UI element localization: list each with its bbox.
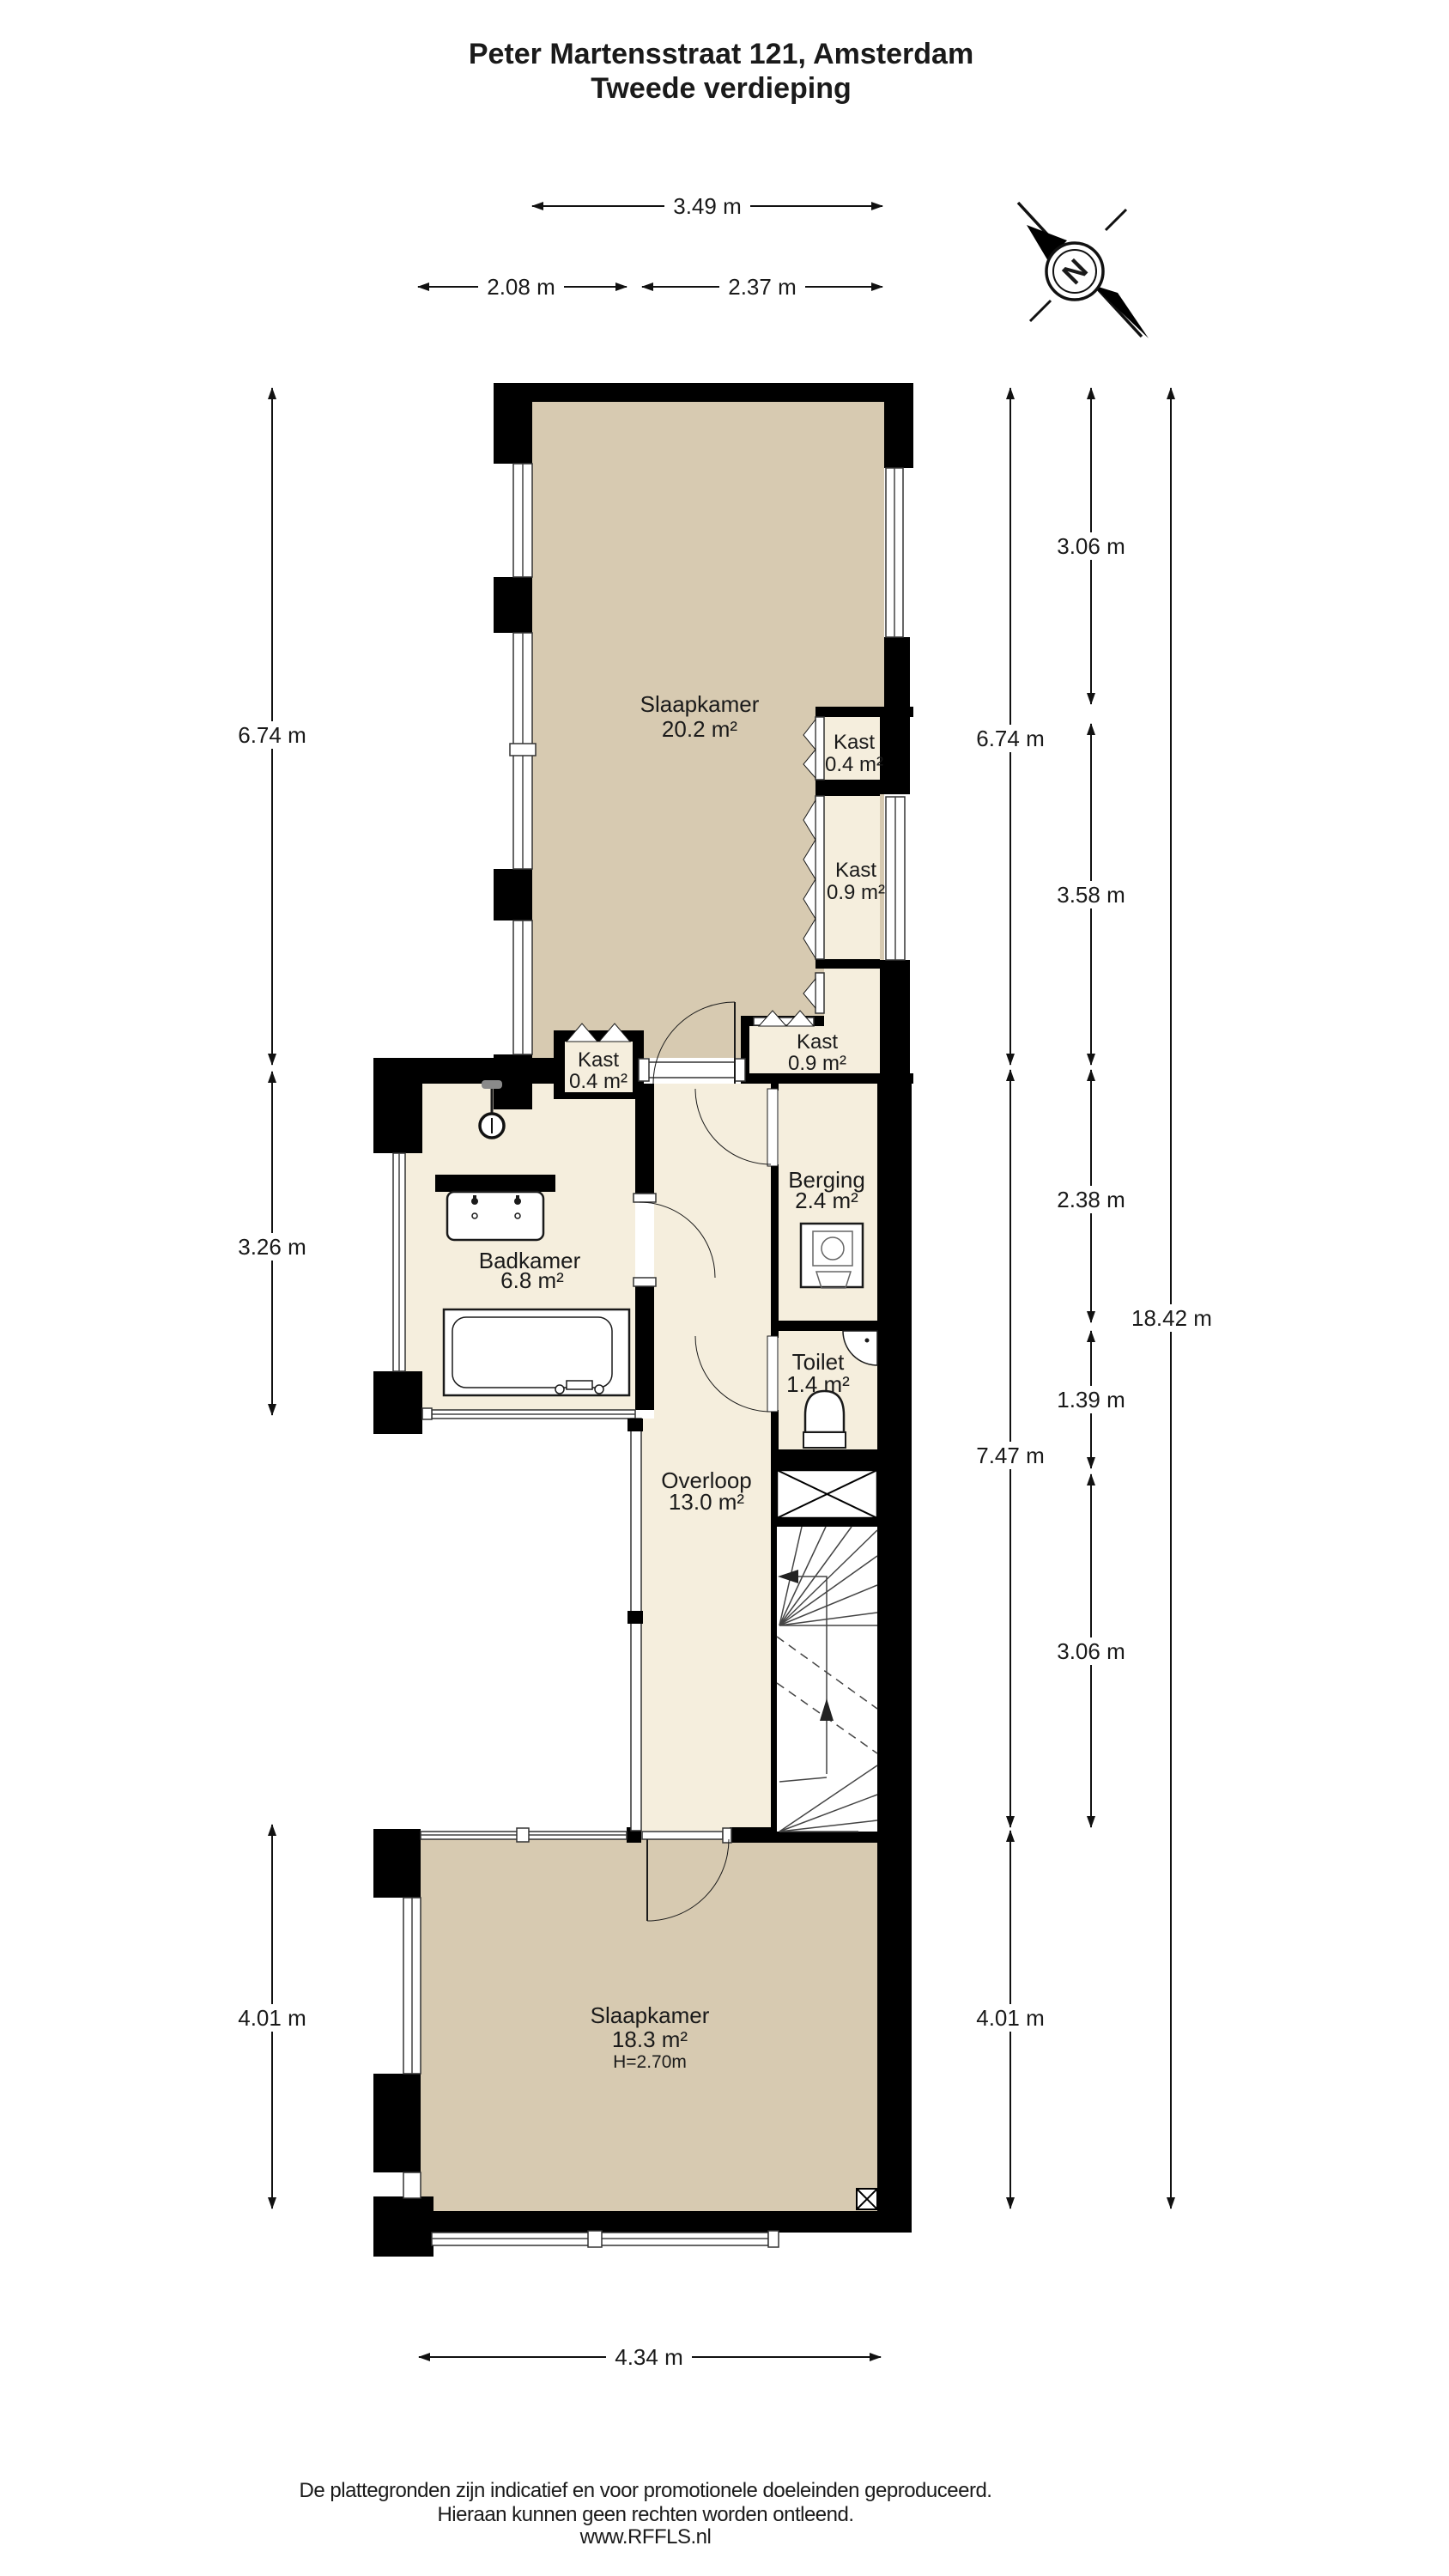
shaft-x-box bbox=[777, 1470, 877, 1518]
dimension-right-674: 6.74 m bbox=[967, 388, 1053, 1065]
dimension-right-1842: 18.42 m bbox=[1121, 388, 1222, 2208]
wall-segment bbox=[373, 1829, 421, 1898]
vanity-sink-icon bbox=[435, 1175, 555, 1240]
dimension-label: 6.74 m bbox=[976, 726, 1045, 751]
room-label: Kast bbox=[835, 859, 876, 882]
dimension-left-401: 4.01 m bbox=[229, 1825, 315, 2208]
folding-door-panel bbox=[815, 796, 824, 959]
toilet-bowl-icon bbox=[803, 1391, 846, 1448]
footer-line-2: Hieraan kunnen geen rechten worden ontle… bbox=[437, 2503, 853, 2526]
window bbox=[393, 1153, 405, 1371]
dimension-top-208: 2.08 m bbox=[418, 273, 627, 301]
room-area: 0.4 m² bbox=[569, 1070, 627, 1093]
window bbox=[513, 464, 532, 577]
window bbox=[403, 1898, 421, 2074]
room-label: Slaapkamer bbox=[591, 2002, 710, 2028]
room-area: 2.4 m² bbox=[795, 1188, 858, 1213]
window bbox=[510, 633, 536, 869]
north-compass-icon: N bbox=[1018, 203, 1149, 338]
door-jamb bbox=[634, 1278, 656, 1286]
door-threshold bbox=[642, 1832, 723, 1839]
wall-segment bbox=[880, 960, 910, 1073]
title-line-1: Peter Martensstraat 121, Amsterdam bbox=[469, 38, 973, 70]
door-jamb bbox=[639, 1059, 649, 1081]
wall-segment bbox=[635, 1084, 654, 1200]
compass-tick-ne bbox=[1106, 210, 1126, 230]
wall-segment bbox=[884, 637, 910, 707]
wall-segment bbox=[373, 1084, 422, 1153]
wall-segment bbox=[880, 707, 910, 794]
sink-tap-dot bbox=[865, 1339, 870, 1343]
dimension-right-238: 2.38 m bbox=[1048, 1070, 1134, 1322]
room-area: 0.9 m² bbox=[827, 881, 885, 904]
dimension-label: 3.06 m bbox=[1057, 533, 1125, 559]
dimension-label: 18.42 m bbox=[1131, 1305, 1212, 1331]
dimension-left-674: 6.74 m bbox=[229, 388, 315, 1065]
footer-line-1: De plattegronden zijn indicatief en voor… bbox=[300, 2479, 992, 2502]
dimension-bottom-434: 4.34 m bbox=[419, 2343, 881, 2371]
room-area: 13.0 m² bbox=[669, 1489, 744, 1515]
washing-machine-icon bbox=[801, 1224, 863, 1288]
vent-x-icon bbox=[857, 2189, 877, 2209]
bathtub-icon bbox=[444, 1309, 629, 1395]
staircase bbox=[777, 1527, 877, 1832]
dimension-label: 1.39 m bbox=[1057, 1387, 1125, 1413]
dimension-right-139: 1.39 m bbox=[1048, 1331, 1134, 1468]
dimension-right-401: 4.01 m bbox=[967, 1831, 1053, 2208]
room-area: 0.9 m² bbox=[788, 1052, 846, 1075]
folding-door-panel bbox=[815, 973, 824, 1013]
door-leaf bbox=[767, 1089, 778, 1166]
window bbox=[403, 2172, 421, 2198]
window bbox=[432, 2231, 779, 2247]
dimension-label: 3.06 m bbox=[1057, 1638, 1125, 1664]
wall-segment bbox=[494, 869, 532, 920]
partition-wall bbox=[627, 1419, 643, 1831]
dimension-label: 4.34 m bbox=[615, 2344, 683, 2370]
window bbox=[421, 1828, 627, 1842]
dimension-label: 4.01 m bbox=[976, 2005, 1045, 2031]
wall-segment bbox=[771, 1449, 877, 1470]
wall-segment bbox=[494, 577, 532, 633]
wall-segment bbox=[421, 2211, 877, 2233]
wall-segment bbox=[884, 383, 913, 468]
dimension-label: 7.47 m bbox=[976, 1443, 1045, 1468]
wall-segment bbox=[815, 780, 880, 796]
wall-segment bbox=[373, 1371, 422, 1434]
dimension-top-237: 2.37 m bbox=[642, 273, 882, 301]
wall-segment bbox=[373, 2074, 421, 2172]
wall-segment bbox=[815, 959, 880, 969]
door-jamb bbox=[723, 1828, 731, 1843]
room-area: 20.2 m² bbox=[662, 716, 737, 742]
door-jamb bbox=[735, 1059, 745, 1081]
dimension-right-358: 3.58 m bbox=[1048, 724, 1134, 1065]
dimension-right-306b: 3.06 m bbox=[1048, 1474, 1134, 1827]
dimension-label: 6.74 m bbox=[238, 722, 306, 748]
dimension-label: 3.58 m bbox=[1057, 882, 1125, 908]
dimension-label: 2.38 m bbox=[1057, 1187, 1125, 1212]
dimension-right-747: 7.47 m bbox=[967, 1070, 1053, 1827]
wall-segment bbox=[635, 1279, 654, 1410]
room-label: Kast bbox=[797, 1030, 838, 1054]
floorplan-drawing: Peter Martensstraat 121, Amsterdam Tweed… bbox=[0, 0, 1449, 2576]
floorplan-page: Peter Martensstraat 121, Amsterdam Tweed… bbox=[0, 0, 1449, 2576]
wall-segment bbox=[494, 383, 532, 464]
dimension-label: 2.37 m bbox=[728, 274, 797, 300]
dimension-left-326: 3.26 m bbox=[229, 1072, 315, 1415]
dimension-label: 2.08 m bbox=[487, 274, 555, 300]
compass-tail bbox=[1093, 285, 1149, 338]
room-area: 1.4 m² bbox=[786, 1371, 850, 1397]
wall-segment bbox=[513, 383, 903, 402]
room-area: 6.8 m² bbox=[500, 1267, 564, 1293]
dimension-label: 3.26 m bbox=[238, 1234, 306, 1260]
room-label: Slaapkamer bbox=[640, 691, 760, 717]
door-threshold bbox=[644, 1062, 735, 1078]
door-leaf bbox=[767, 1336, 778, 1412]
door-jamb bbox=[634, 1194, 656, 1202]
folding-door-panel bbox=[815, 717, 824, 780]
title-line-2: Tweede verdieping bbox=[591, 72, 852, 105]
footer-disclaimer: De plattegronden zijn indicatief en voor… bbox=[300, 2479, 992, 2549]
window bbox=[886, 468, 903, 637]
compass-tick-sw bbox=[1030, 301, 1051, 321]
dimension-right-306a: 3.06 m bbox=[1048, 388, 1134, 704]
room-label: Kast bbox=[578, 1048, 619, 1072]
room-label: Kast bbox=[834, 731, 875, 754]
dimension-label: 4.01 m bbox=[238, 2005, 306, 2031]
window bbox=[886, 797, 905, 960]
footer-website-link: www.RFFLS.nl bbox=[579, 2525, 712, 2549]
window bbox=[422, 1408, 635, 1419]
dimension-top-349: 3.49 m bbox=[532, 192, 882, 220]
room-area: 0.4 m² bbox=[825, 753, 883, 776]
floor-overloop-upper bbox=[654, 1084, 771, 1420]
room-area: 18.3 m² bbox=[612, 2026, 688, 2052]
wall-segment bbox=[771, 1321, 877, 1331]
wall-segment bbox=[877, 1073, 912, 2233]
ceiling-height-label: H=2.70m bbox=[613, 2052, 687, 2072]
wall-segment bbox=[771, 1518, 877, 1527]
page-title: Peter Martensstraat 121, Amsterdam Tweed… bbox=[469, 38, 973, 105]
wall-segment bbox=[771, 1084, 777, 1842]
window bbox=[513, 920, 532, 1054]
dimension-label: 3.49 m bbox=[673, 193, 742, 219]
